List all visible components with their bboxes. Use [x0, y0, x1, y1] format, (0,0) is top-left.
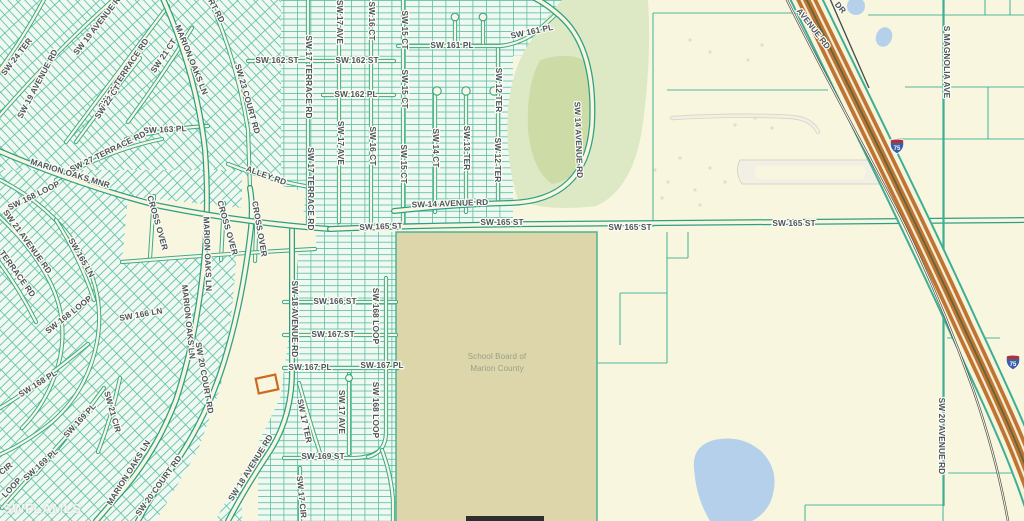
- street-label: S MAGNOLIA AVE: [942, 26, 952, 99]
- street-label: SW 168 LOOP: [371, 288, 381, 345]
- street-label: SW 162 ST: [255, 55, 298, 65]
- street-label: SW 17 AVE: [335, 0, 345, 44]
- interstate-shield-number: 75: [894, 146, 901, 152]
- street-label: SW 20 AVENUE RD: [937, 398, 947, 475]
- street-label: SW 165 ST: [480, 217, 523, 227]
- street-label: SW 162 ST: [335, 55, 378, 65]
- street-label: SW 17 AVE: [336, 121, 346, 166]
- map-canvas[interactable]: 7575 SW 24 TERSW 19 AVENUE RDSW 19 AVENU…: [0, 0, 1024, 521]
- interstate-shield-number: 75: [1010, 362, 1017, 368]
- street-label: SW 17 TERRACE RD: [304, 35, 314, 118]
- street-label: SW 15 CT: [400, 69, 410, 108]
- street-label: SW 165 ST: [608, 222, 651, 232]
- school-parcel: [396, 232, 597, 521]
- street-label: SW 168 LOOP: [371, 382, 381, 439]
- street-label: SW 16 CT: [367, 1, 377, 40]
- street-label: SW 161 PL: [430, 40, 473, 50]
- street-label: SW 12 TER: [493, 138, 503, 183]
- street-label: SW 13 TER: [462, 126, 472, 171]
- street-label: SW 15 CT: [400, 10, 410, 49]
- area-label: Marion County: [470, 364, 523, 373]
- street-label: SW 167 PL: [360, 360, 403, 370]
- street-label: SW 17 AVE: [337, 390, 347, 435]
- street-label: SW 17 TERRACE RD: [306, 147, 316, 230]
- street-label: SW 162 PL: [334, 89, 377, 99]
- street-label: SW 165 ST: [772, 218, 815, 228]
- street-label: SW 169 ST: [301, 451, 344, 461]
- street-label: SW 165 ST: [359, 220, 403, 232]
- bottom-dark-bar: [466, 516, 544, 521]
- street-label: SW 166 ST: [313, 296, 356, 306]
- street-label: SW 15 CT: [399, 144, 409, 183]
- watermark: SWFLAMLS: [3, 501, 81, 516]
- street-label: SW 14 CT: [431, 128, 441, 167]
- area-label: School Board of: [468, 352, 527, 361]
- street-label: SW 167 ST: [311, 329, 354, 339]
- street-label: SW 16 CT: [368, 126, 378, 165]
- map-viewport[interactable]: 7575 SW 24 TERSW 19 AVENUE RDSW 19 AVENU…: [0, 0, 1024, 521]
- street-label: SW 12 TER: [494, 68, 504, 113]
- highlighted-parcel[interactable]: [256, 375, 279, 394]
- street-label: SW 167 PL: [288, 362, 331, 372]
- street-label: SW 18 AVENUE RD: [290, 281, 300, 358]
